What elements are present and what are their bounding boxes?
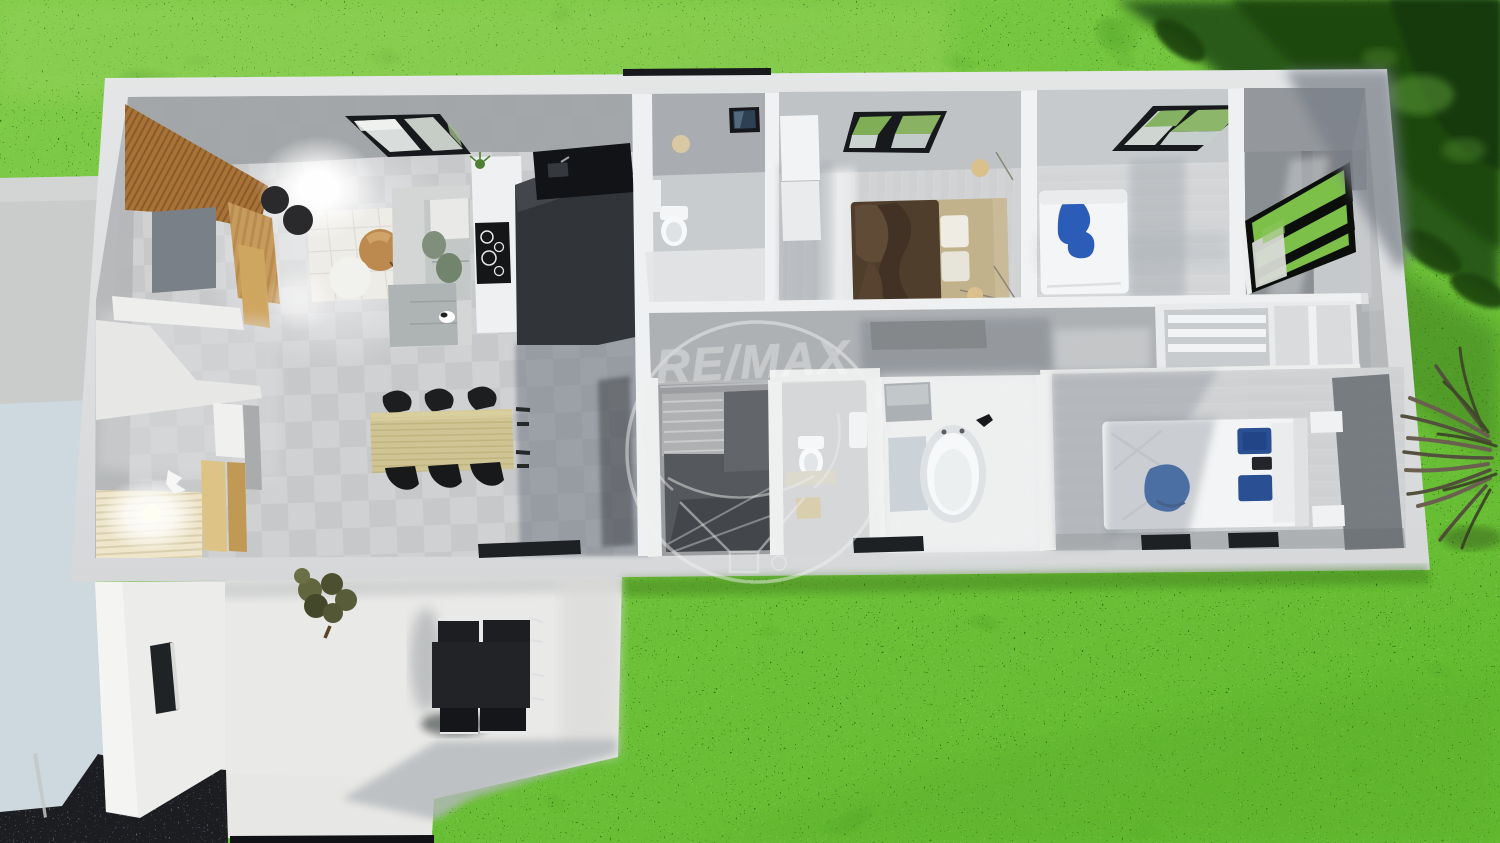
svg-text:RE/MAX: RE/MAX — [655, 330, 853, 393]
